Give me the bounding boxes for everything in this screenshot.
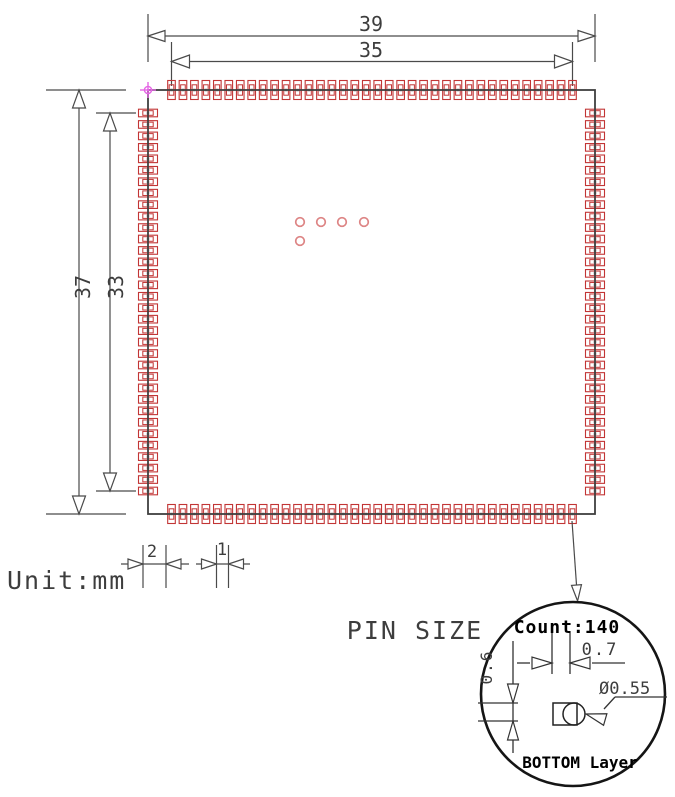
cad-drawing: 39 35 37 33 2 1 Unit:mm PIN SIZE Count:1… [0,0,675,797]
dim-outer-height-label: 37 [71,275,95,299]
detail-bubble-graphics [478,521,667,786]
dimension-lines [46,14,595,588]
center-via-marks [296,218,369,246]
dim-inner-width-label: 35 [359,38,383,62]
detail-hole-diameter-label: Ø0.55 [599,679,650,699]
detail-count-label: Count:140 [514,617,621,638]
unit-note: Unit:mm [7,566,126,595]
detail-pad-width-label: 0.7 [582,640,619,660]
footprint-drawing-canvas: 39 35 37 33 2 1 Unit:mm PIN SIZE Count:1… [0,0,675,797]
package-outline [148,90,595,514]
detail-pad-height-label: 0.6 [477,650,496,685]
dim-outer-width-label: 39 [359,12,383,36]
legend-pitch-large-label: 2 [147,542,157,562]
pin-size-title: PIN SIZE [347,616,483,645]
detail-layer-label: BOTTOM Layer [522,753,638,772]
origin-marker [140,82,156,98]
legend-pitch-small-label: 1 [217,540,227,560]
dim-inner-height-label: 33 [104,275,128,299]
pad-arrays [139,81,605,524]
